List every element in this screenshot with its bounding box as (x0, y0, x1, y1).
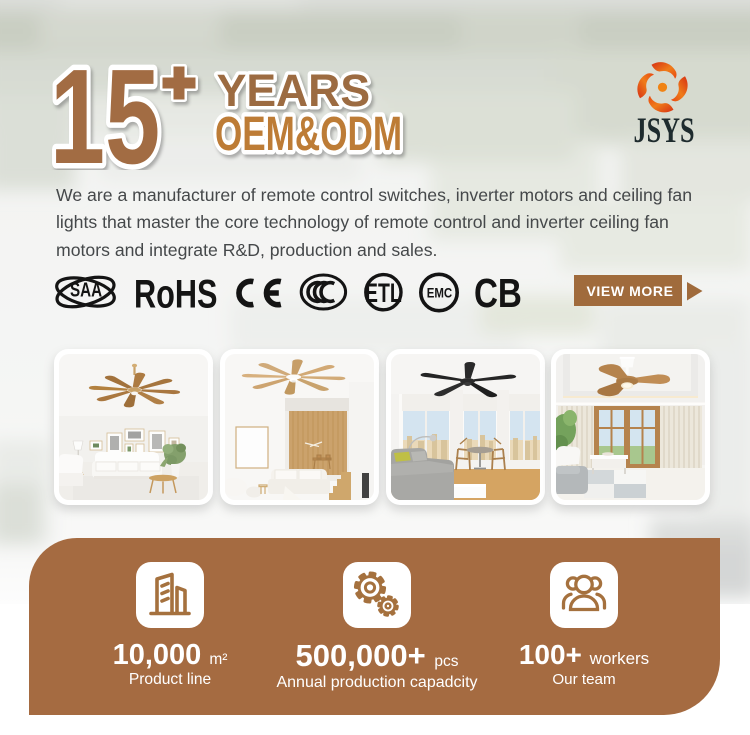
svg-text:ETL: ETL (365, 278, 402, 308)
svg-text:SAA: SAA (70, 278, 102, 301)
svg-text:CB: CB (474, 270, 522, 316)
svg-text:VIEW MORE: VIEW MORE (586, 283, 673, 299)
svg-text:EMC: EMC (427, 286, 452, 301)
svg-text:RoHS: RoHS (134, 273, 218, 317)
svg-text:JSYS: JSYS (634, 110, 695, 150)
svg-text:15: 15 (50, 42, 160, 170)
svg-text:OEM&ODM: OEM&ODM (215, 107, 402, 161)
